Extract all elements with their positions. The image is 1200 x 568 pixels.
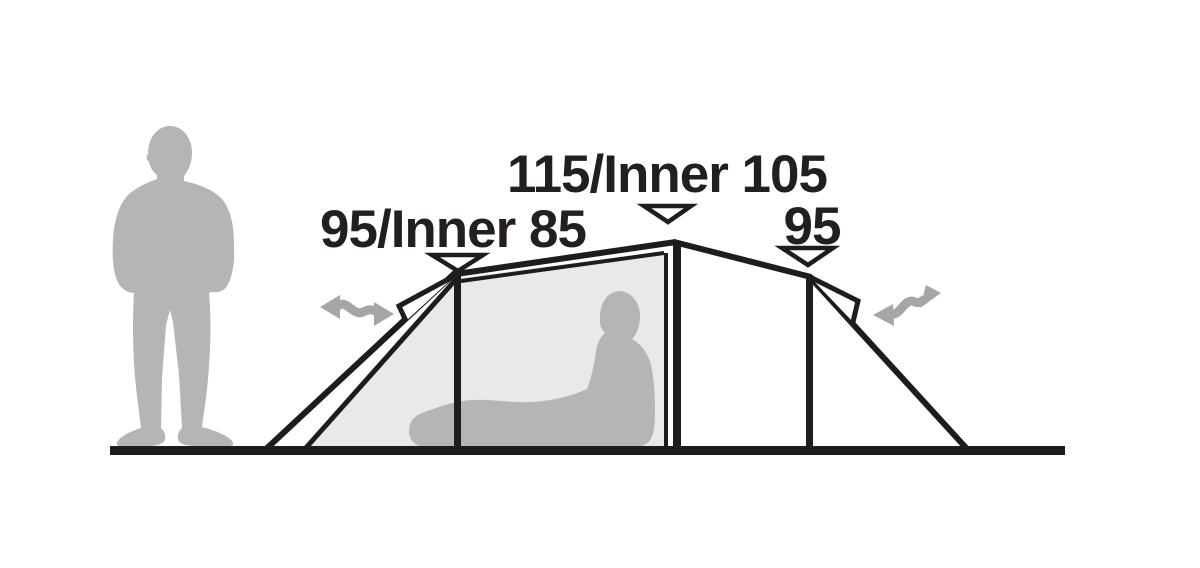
left-arrow-shaft: [337, 304, 377, 313]
right-slope-line: [809, 276, 968, 450]
left-entrance-arrow-icon: [320, 295, 394, 326]
diagram-canvas: [0, 0, 1200, 568]
height-label-left: 95/Inner 85: [320, 203, 586, 256]
height-label-center: 115/Inner 105: [507, 148, 827, 201]
left-arrow-head-right: [374, 302, 394, 326]
standing-person-silhouette: [113, 126, 235, 446]
right-entrance-arrow-icon: [873, 285, 941, 326]
center-height-marker-triangle-icon: [644, 206, 691, 222]
right-vent-flap: [810, 277, 858, 322]
ground-line: [110, 446, 1065, 455]
left-arrow-head-left: [320, 295, 340, 319]
right-arrow-shaft: [890, 299, 925, 314]
height-label-right: 95: [784, 200, 841, 253]
right-arrow-head-left: [873, 304, 894, 326]
tent-dimension-diagram: 95/Inner 85 115/Inner 105 95: [0, 0, 1200, 568]
right-arrow-head-right: [920, 285, 941, 308]
